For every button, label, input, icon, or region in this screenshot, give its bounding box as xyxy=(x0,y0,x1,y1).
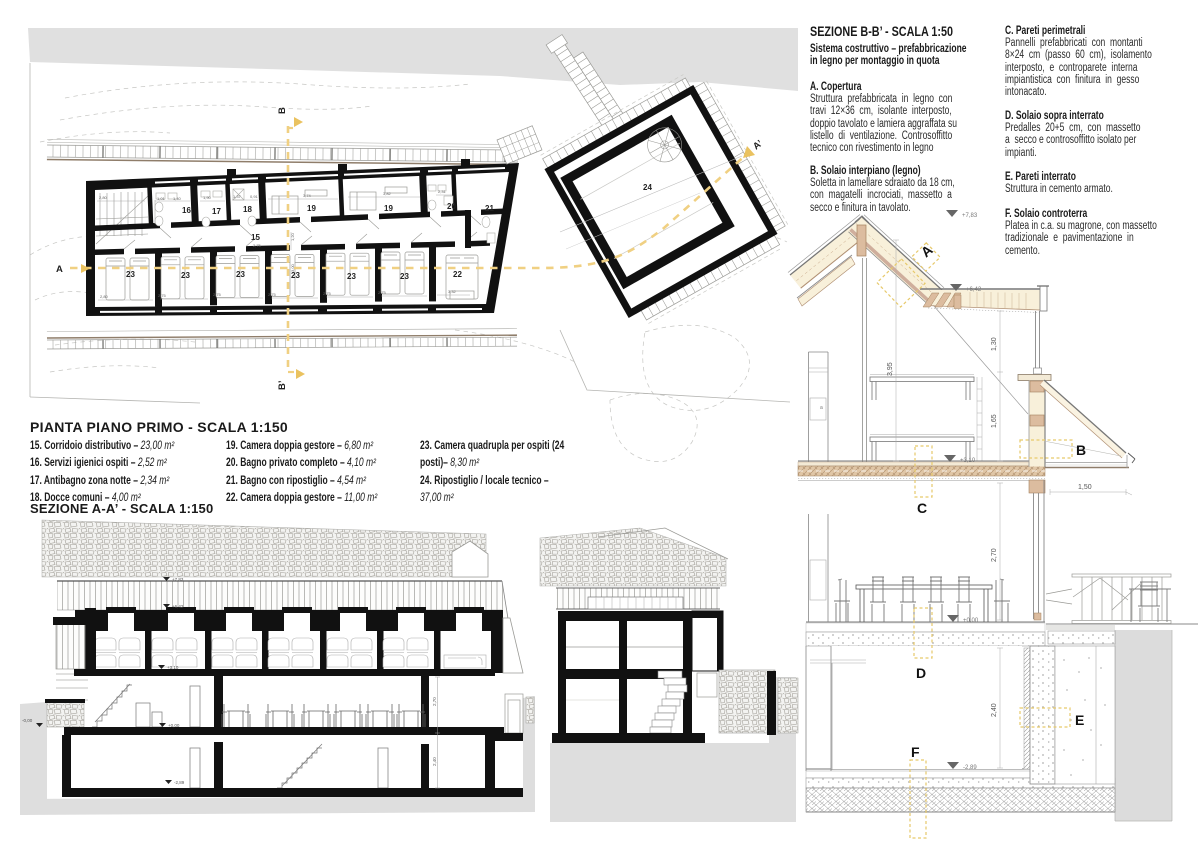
svg-text:23: 23 xyxy=(400,272,409,281)
svg-text:24: 24 xyxy=(643,183,652,192)
svg-text:1,37: 1,37 xyxy=(233,194,242,199)
svg-text:+0,00: +0,00 xyxy=(963,618,979,624)
svg-text:2,40: 2,40 xyxy=(991,703,998,717)
svg-text:1,20: 1,20 xyxy=(290,232,295,241)
svg-text:23: 23 xyxy=(236,270,245,279)
svg-text:C: C xyxy=(917,500,927,516)
svg-text:0,91: 0,91 xyxy=(250,194,259,199)
svg-text:B’: B’ xyxy=(277,381,288,391)
svg-text:23: 23 xyxy=(126,270,135,279)
svg-text:A: A xyxy=(56,264,63,275)
svg-text:2,70: 2,70 xyxy=(991,548,998,562)
svg-text:3,95: 3,95 xyxy=(887,362,894,376)
svg-text:1,65: 1,65 xyxy=(991,414,998,428)
svg-text:-2,89: -2,89 xyxy=(174,780,185,785)
svg-text:+7,83: +7,83 xyxy=(172,577,184,582)
svg-text:21: 21 xyxy=(485,204,494,213)
svg-text:19: 19 xyxy=(384,204,393,213)
svg-text:D: D xyxy=(916,665,926,681)
svg-text:F: F xyxy=(911,744,920,760)
svg-text:3,74: 3,74 xyxy=(303,193,312,198)
svg-text:B: B xyxy=(1076,442,1086,458)
svg-text:22: 22 xyxy=(453,270,462,279)
svg-text:1,40: 1,40 xyxy=(173,196,182,201)
svg-text:3,32: 3,32 xyxy=(448,289,457,294)
svg-text:2,75: 2,75 xyxy=(378,290,387,295)
svg-text:+0,00: +0,00 xyxy=(168,723,180,728)
svg-text:2,75: 2,75 xyxy=(213,292,222,297)
svg-text:+3,10: +3,10 xyxy=(960,458,976,464)
svg-text:1,50: 1,50 xyxy=(1078,484,1092,491)
svg-text:2,31: 2,31 xyxy=(438,189,447,194)
svg-text:2,80: 2,80 xyxy=(99,195,108,200)
svg-text:19: 19 xyxy=(307,204,316,213)
svg-text:2,75: 2,75 xyxy=(323,291,332,296)
svg-text:20: 20 xyxy=(447,202,456,211)
svg-text:-2,89: -2,89 xyxy=(963,765,977,771)
svg-text:E: E xyxy=(1075,712,1084,728)
svg-text:2,75: 2,75 xyxy=(253,243,262,248)
svg-text:+3,10: +3,10 xyxy=(167,665,179,670)
svg-text:+6,42: +6,42 xyxy=(172,604,184,609)
svg-text:17: 17 xyxy=(212,207,221,216)
svg-text:1,90: 1,90 xyxy=(203,195,212,200)
svg-text:+6,42: +6,42 xyxy=(966,287,982,293)
svg-text:1,01: 1,01 xyxy=(157,196,166,201)
svg-text:18: 18 xyxy=(243,205,252,214)
svg-text:A’: A’ xyxy=(751,138,765,152)
svg-text:16: 16 xyxy=(182,206,191,215)
svg-text:2,75: 2,75 xyxy=(158,293,167,298)
svg-text:2,70: 2,70 xyxy=(432,697,437,706)
svg-text:2,40: 2,40 xyxy=(432,757,437,766)
svg-text:a: a xyxy=(820,405,823,411)
svg-text:2,80: 2,80 xyxy=(100,294,109,299)
svg-text:+7,83: +7,83 xyxy=(962,213,978,219)
svg-text:23: 23 xyxy=(347,272,356,281)
svg-text:B: B xyxy=(277,107,288,114)
svg-text:-0,00: -0,00 xyxy=(22,718,33,723)
svg-text:1,30: 1,30 xyxy=(991,337,998,351)
svg-text:A: A xyxy=(918,242,936,261)
svg-text:2,75: 2,75 xyxy=(268,292,277,297)
svg-text:3,82: 3,82 xyxy=(383,191,392,196)
svg-text:23: 23 xyxy=(181,271,190,280)
svg-text:15: 15 xyxy=(251,233,260,242)
